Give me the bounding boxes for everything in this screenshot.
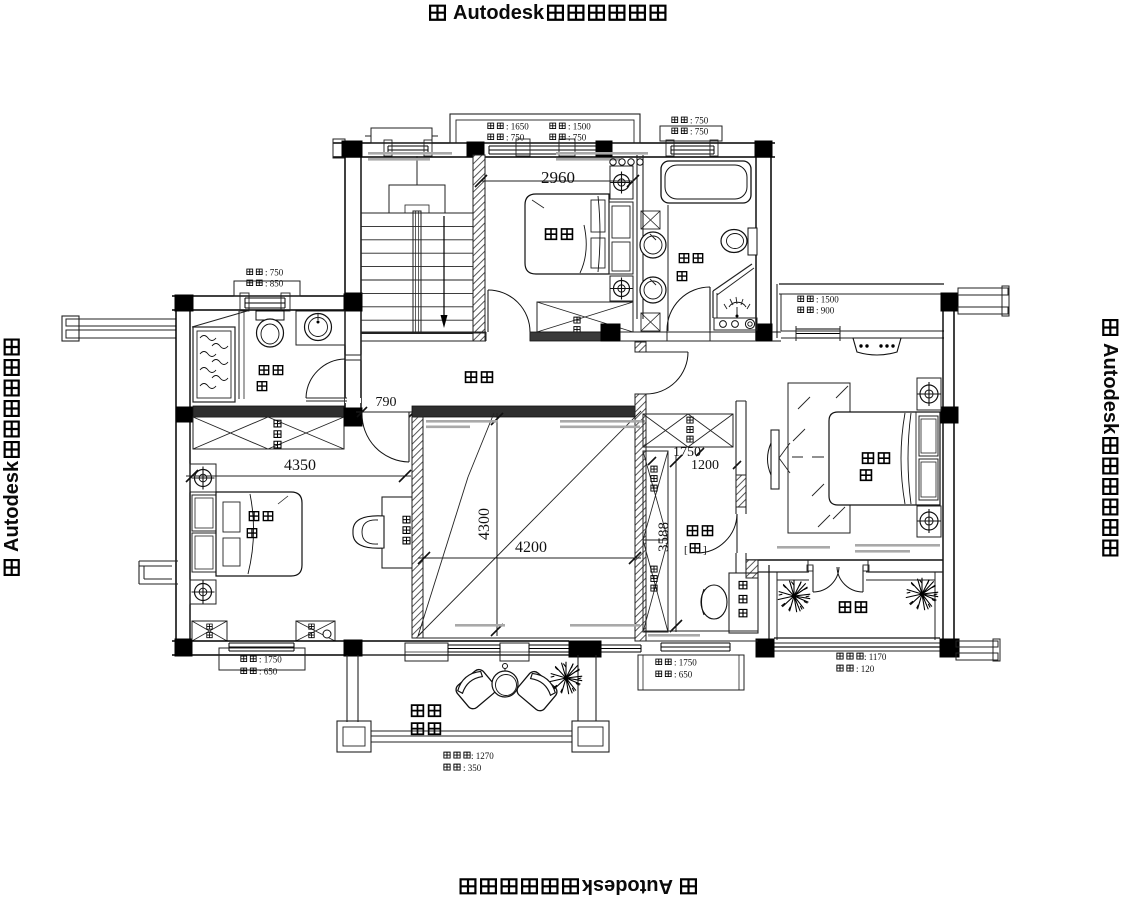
svg-text:: 650: : 650 [259,667,278,677]
svg-text:]: ] [703,544,707,556]
svg-text:: 1650: : 1650 [506,122,529,132]
svg-text:[: [ [684,544,688,556]
svg-text:: 750: : 750 [690,116,709,126]
svg-text:: 1750: : 1750 [674,658,697,668]
svg-text:4300: 4300 [476,508,493,540]
svg-text:Autodesk: Autodesk [1,460,23,552]
svg-text:: 120: : 120 [856,664,875,674]
svg-text:: 750: : 750 [265,268,284,278]
svg-text:Autodesk: Autodesk [1099,343,1121,435]
svg-text:: 1170: : 1170 [864,652,887,662]
svg-text:2960: 2960 [541,168,575,187]
svg-text:790: 790 [376,395,397,410]
svg-text:4350: 4350 [284,457,316,474]
svg-text:: 350: : 350 [463,763,482,773]
svg-text:: 1750: : 1750 [259,655,282,665]
svg-text:: 850: : 850 [265,279,284,289]
svg-text:Autodesk: Autodesk [581,875,673,897]
svg-text:: 750: : 750 [690,127,709,137]
svg-text:: 900: : 900 [816,306,835,316]
svg-text:: 750: : 750 [506,133,525,143]
svg-text:: 1500: : 1500 [816,295,839,305]
svg-text:: 650: : 650 [674,670,693,680]
svg-text:: 1270: : 1270 [471,751,494,761]
svg-text:Autodesk: Autodesk [453,2,545,24]
svg-text:3588: 3588 [656,522,672,552]
svg-text:: 750: : 750 [568,133,587,143]
svg-text:: 1500: : 1500 [568,122,591,132]
svg-text:1200: 1200 [691,458,719,473]
svg-text:4200: 4200 [515,539,547,556]
